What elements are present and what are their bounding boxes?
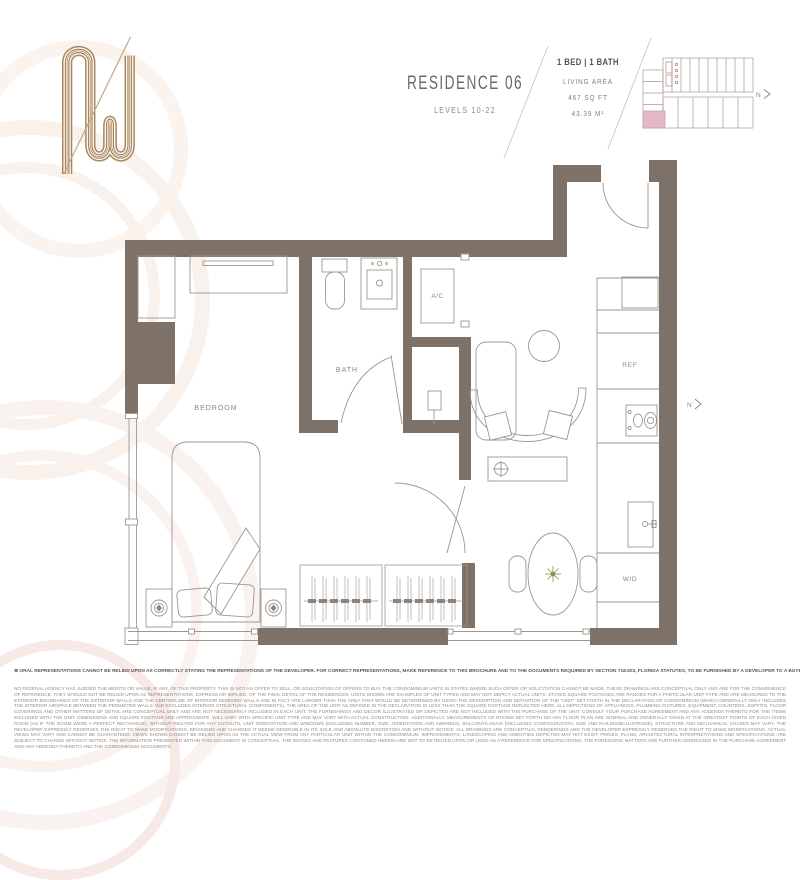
toilet [322,259,347,309]
key-plan: N [643,58,770,128]
bath-label: BATH [336,367,358,374]
hall-door [395,483,465,553]
side-pouf [529,331,560,362]
plan-north-chevron-icon [695,399,701,409]
bed-blanket-fold [204,528,260,614]
kitchen-sink [628,502,657,547]
header-dividers [504,38,651,158]
disclaimer-body: NO FEDERAL AGENCY HAS JUDGED THE MERITS … [14,686,786,750]
windows [125,414,590,645]
plan-north-indicator: N [687,399,701,409]
wd-label: W/D [623,576,637,583]
cooktop [626,405,657,436]
keyplan-north-label: N [756,92,761,99]
bedroom-label: BEDROOM [194,405,237,412]
sofa [470,342,586,442]
plan-north-label: N [687,402,692,409]
coffee-table [488,457,567,481]
shower [341,355,441,424]
living-room [470,331,597,616]
ac-label: A/C [431,293,443,300]
bedroom-closet-niche [138,256,175,318]
nightstand-right [261,589,286,627]
ref-label: REF [622,362,637,369]
tv [203,261,273,266]
plant-centerpiece [545,566,561,582]
dresser [190,256,287,293]
dining-set [509,533,597,615]
closets [300,565,467,626]
disclaimer-bold-line: ⊕ ORAL REPRESENTATIONS CANNOT BE RELIED … [14,669,786,674]
kitchen: REF W/D [597,277,659,628]
keyplan-north-indicator: N [756,90,770,100]
ac-closet: A/C [421,254,469,327]
foyer-closet [622,277,658,308]
nightstand-left [146,589,172,627]
keyplan-highlighted-unit [643,111,665,128]
bath-vanity [361,258,397,309]
keyplan-north-chevron-icon [764,90,770,99]
floorplan-drawing: N [0,0,800,800]
bedroom: BEDROOM [138,256,287,627]
floorplan-walls [125,160,677,645]
entry-door [603,183,648,228]
